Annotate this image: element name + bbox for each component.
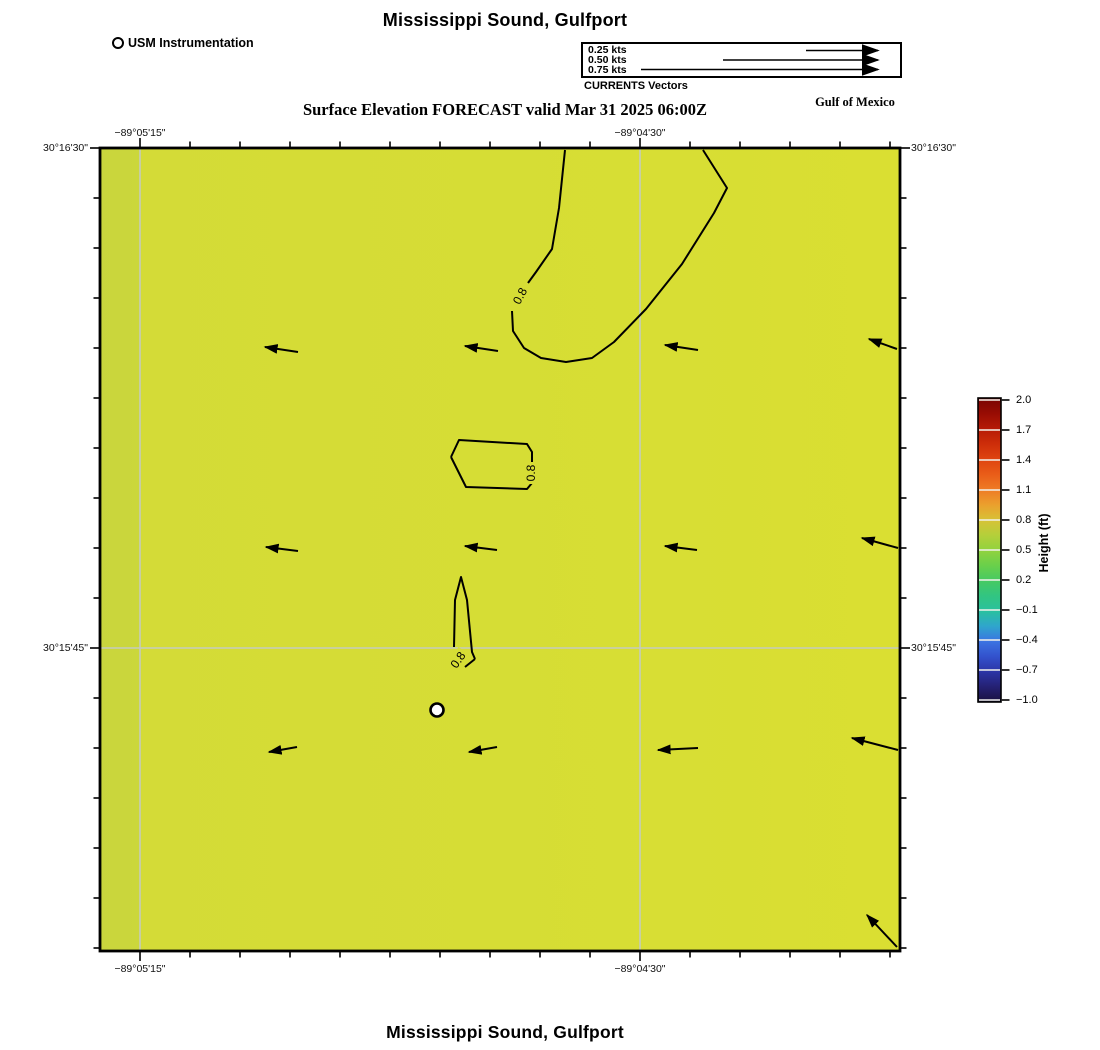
forecast-subtitle: Surface Elevation FORECAST valid Mar 31 … bbox=[105, 100, 905, 120]
y-tick-label-left-south: 30°15'45" bbox=[16, 642, 88, 654]
station-legend: USM Instrumentation bbox=[112, 36, 254, 50]
station-legend-label: USM Instrumentation bbox=[128, 36, 254, 50]
vector-legend-item-075: 0.75 kts bbox=[588, 66, 900, 76]
y-tick-label-left-north: 30°16'30" bbox=[16, 142, 88, 154]
contour-label: 0.8 bbox=[524, 462, 538, 484]
x-tick-label-top-west: −89°05'15" bbox=[90, 127, 190, 139]
contour-label-text: 0.8 bbox=[524, 464, 538, 481]
station-circle-icon bbox=[112, 37, 124, 49]
vector-legend-item-050: 0.50 kts bbox=[588, 56, 900, 66]
colorbar-tick-label: 1.7 bbox=[1016, 424, 1031, 436]
colorbar-tick-label: −1.0 bbox=[1016, 694, 1038, 706]
x-tick-label-top-east: −89°04'30" bbox=[590, 127, 690, 139]
colorbar-tick-label: −0.4 bbox=[1016, 634, 1038, 646]
colorbar-tick-label: 0.2 bbox=[1016, 574, 1031, 586]
page-title: Mississippi Sound, Gulfport bbox=[105, 10, 905, 31]
vector-legend-item-025: 0.25 kts bbox=[588, 46, 900, 56]
x-tick-label-bottom-west: −89°05'15" bbox=[90, 963, 190, 975]
vector-legend-box: 0.25 kts 0.50 kts 0.75 kts bbox=[581, 42, 902, 78]
map-surface bbox=[100, 148, 900, 951]
colorbar-tick-label: 1.4 bbox=[1016, 454, 1031, 466]
figure: 0.80.80.8 Mississippi Sound, Gulfport US… bbox=[0, 0, 1100, 1050]
colorbar-tick-label: −0.1 bbox=[1016, 604, 1038, 616]
region-label: Gulf of Mexico bbox=[805, 95, 905, 110]
colorbar-tick-label: 2.0 bbox=[1016, 394, 1031, 406]
colorbar-tick-label: 0.8 bbox=[1016, 514, 1031, 526]
footer-title: Mississippi Sound, Gulfport bbox=[105, 1022, 905, 1043]
station-marker bbox=[431, 704, 444, 717]
colorbar-tick-label: 0.5 bbox=[1016, 544, 1031, 556]
colorbar-tick-label: 1.1 bbox=[1016, 484, 1031, 496]
colorbar-tick-label: −0.7 bbox=[1016, 664, 1038, 676]
y-tick-label-right-south: 30°15'45" bbox=[911, 642, 956, 654]
y-tick-label-right-north: 30°16'30" bbox=[911, 142, 956, 154]
currents-caption: CURRENTS Vectors bbox=[584, 80, 688, 92]
colorbar-title: Height (ft) bbox=[1037, 513, 1051, 572]
plot-canvas: 0.80.80.8 bbox=[0, 0, 1100, 1050]
x-tick-label-bottom-east: −89°04'30" bbox=[590, 963, 690, 975]
